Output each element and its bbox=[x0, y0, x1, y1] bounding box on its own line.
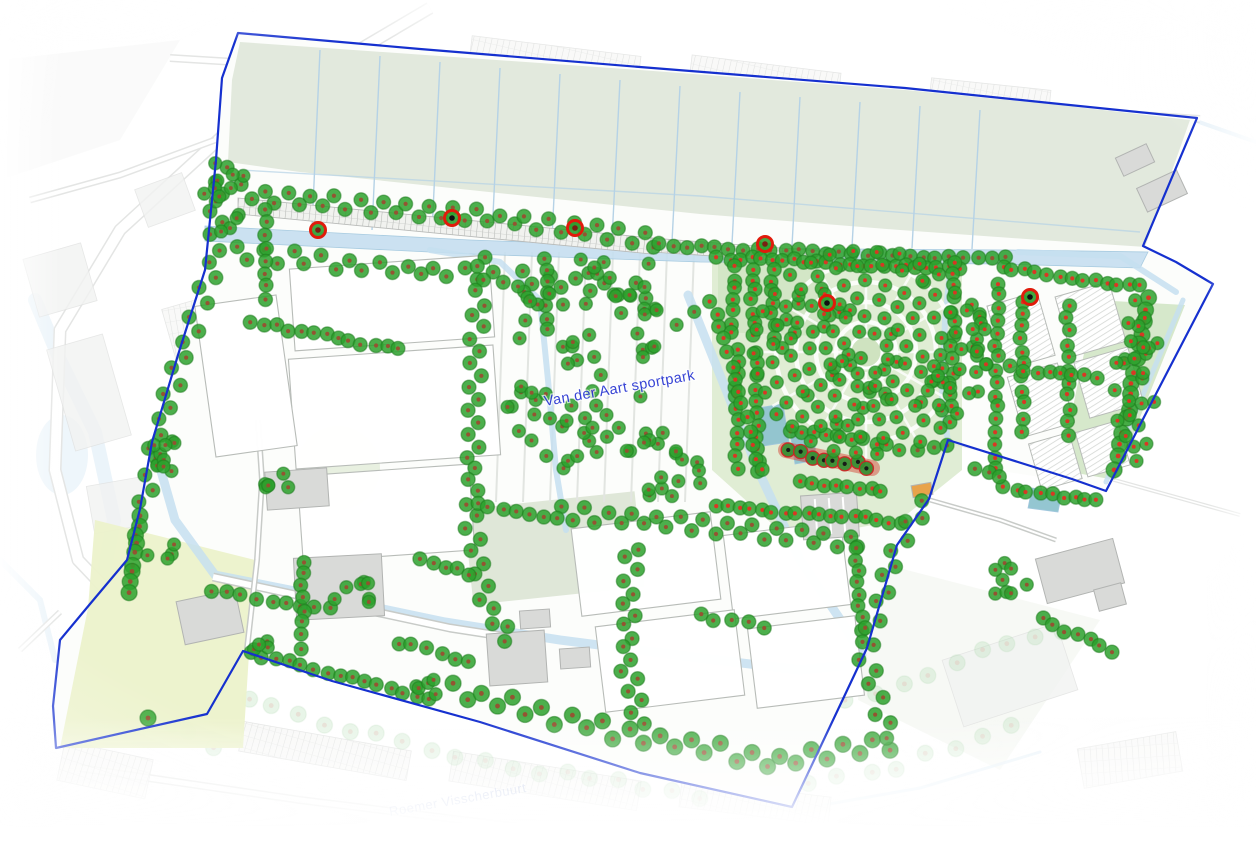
map-viewport[interactable]: Van der Aart sportpark Roemer Visscherbu… bbox=[0, 0, 1256, 844]
map-label-neighborhood: Roemer Visscherbuurt bbox=[388, 780, 528, 819]
map-layers bbox=[0, 8, 1256, 832]
map-canvas: Van der Aart sportpark Roemer Visscherbu… bbox=[0, 0, 1256, 844]
